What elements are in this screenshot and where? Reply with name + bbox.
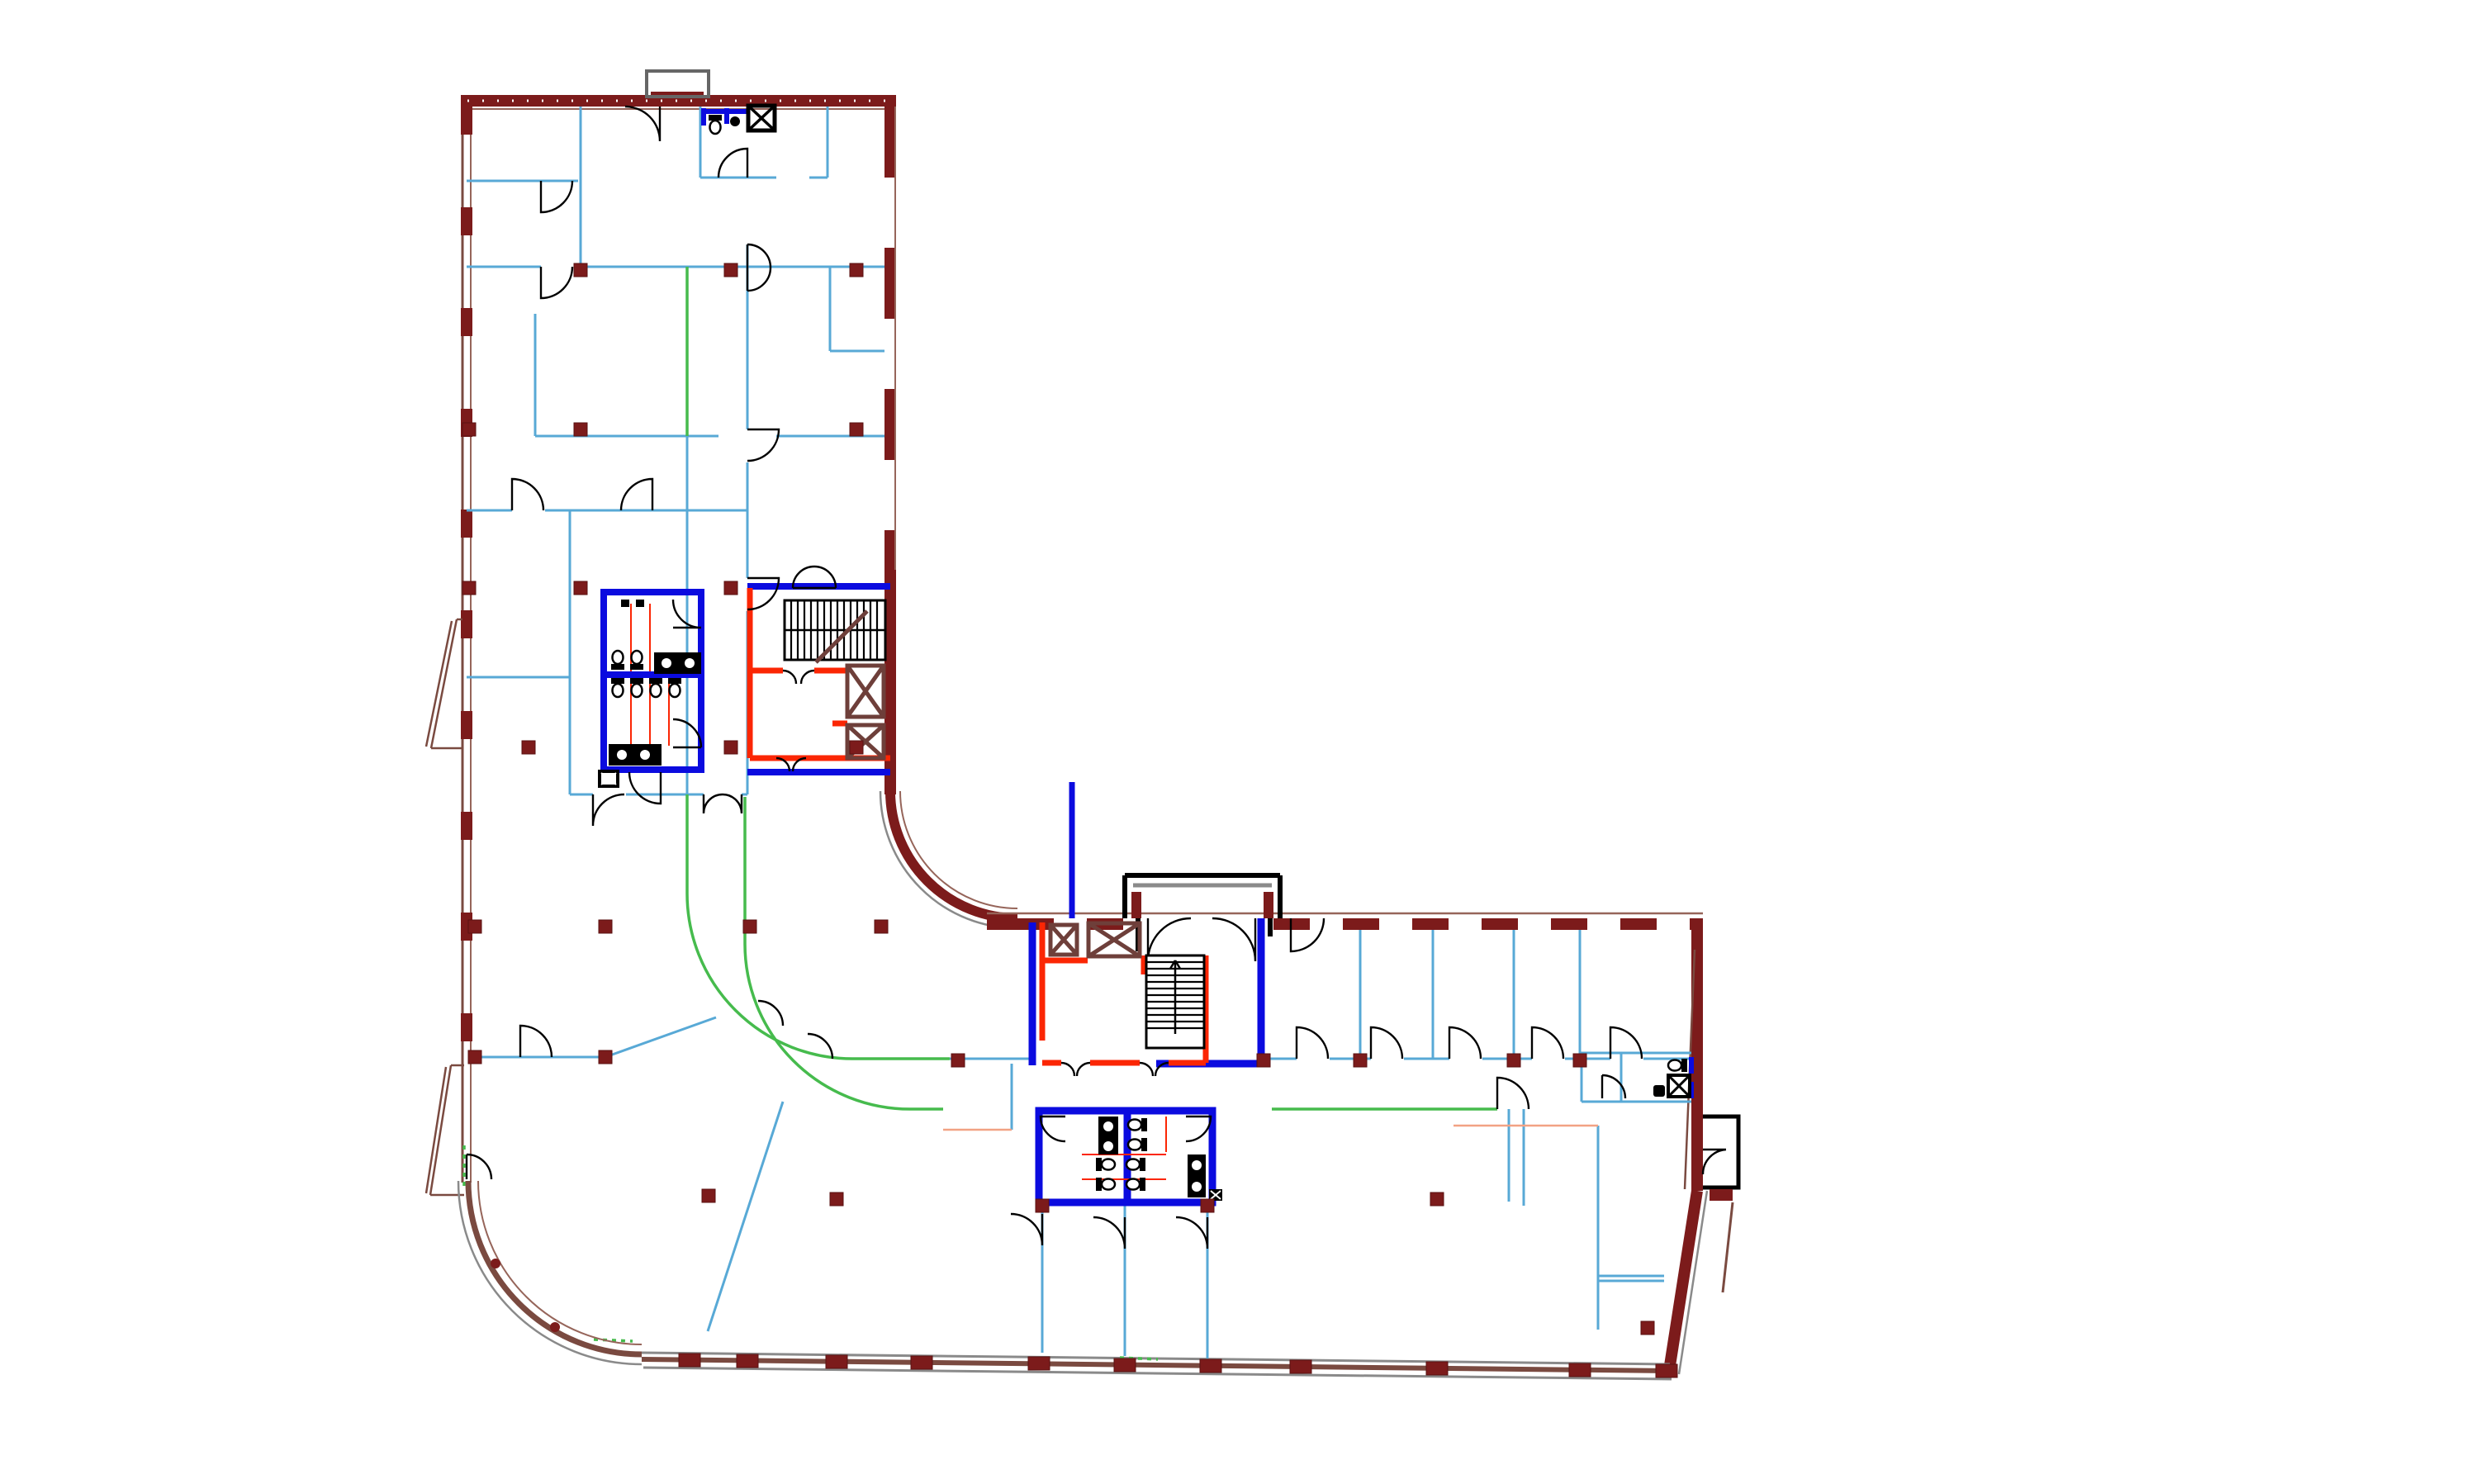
curve-column-a	[491, 1259, 500, 1268]
door-swing	[541, 267, 572, 298]
south-wing-wall-start	[987, 918, 1020, 930]
column	[724, 581, 737, 595]
south-vestibule	[1125, 875, 1280, 961]
column	[462, 581, 476, 595]
column	[1036, 1199, 1049, 1212]
stoop-rail	[1723, 1202, 1733, 1292]
door-swing	[512, 479, 543, 510]
door-swing	[621, 479, 652, 510]
column	[1201, 1199, 1214, 1212]
toilet-fixture	[709, 115, 722, 134]
door-swing	[541, 181, 572, 212]
wall-pier	[679, 1354, 700, 1367]
column	[724, 263, 737, 277]
column	[1430, 1192, 1444, 1206]
sink-counter	[609, 744, 662, 766]
floor-plan-page	[0, 0, 2485, 1484]
sink-bowl	[1103, 1121, 1113, 1131]
column	[850, 741, 863, 754]
column	[875, 920, 888, 933]
toilet-fixture	[611, 678, 624, 697]
west-angled-feature	[426, 619, 462, 748]
door-swing	[1297, 1027, 1328, 1059]
toilet-fixture	[611, 651, 624, 670]
toilet-fixture	[1096, 1158, 1115, 1171]
column	[574, 581, 587, 595]
fixture	[621, 600, 629, 607]
elevator-x	[847, 666, 884, 717]
east-stoop	[1703, 1117, 1738, 1292]
sink-bowl	[640, 750, 650, 760]
toilet-fixture	[1126, 1158, 1145, 1171]
curved-corridor-inner	[687, 794, 950, 1059]
inner-corner-curve	[890, 791, 1017, 918]
glazed-partitions	[687, 267, 1497, 1109]
door-swing	[593, 794, 624, 826]
door-swing	[747, 429, 779, 461]
column	[462, 423, 476, 436]
column	[1641, 1321, 1654, 1335]
door-swing	[718, 149, 747, 178]
south-wing-partitions	[475, 930, 1691, 1358]
vestibule-pier-east	[1264, 892, 1273, 918]
curve-column-b	[550, 1322, 560, 1332]
column	[951, 1054, 965, 1067]
floor-plan-canvas	[0, 0, 2485, 1484]
stoop-step	[1710, 1189, 1733, 1201]
column	[830, 1192, 843, 1206]
janitor-shaft-x	[601, 773, 616, 785]
toilet-fixture	[1128, 1138, 1147, 1151]
wall-pier	[1290, 1360, 1311, 1373]
wall-pier	[1200, 1359, 1221, 1373]
door-swing	[1371, 1027, 1402, 1059]
sink-bowl	[1192, 1182, 1202, 1192]
east-sink	[1653, 1085, 1665, 1097]
door-swing-curve	[758, 1001, 783, 1026]
column	[1257, 1054, 1270, 1067]
door-swing	[625, 107, 660, 141]
toilet-fixture	[630, 678, 643, 697]
door-swing	[1041, 1117, 1065, 1141]
toilet-fixture	[1128, 1118, 1147, 1131]
toilet-fixture	[668, 678, 681, 697]
south-elevators	[1050, 923, 1140, 956]
sink-bowl	[1103, 1141, 1113, 1151]
wall-pier	[1426, 1362, 1448, 1375]
column	[522, 741, 535, 754]
south-core	[1032, 918, 1261, 1076]
door-swing	[1497, 1078, 1529, 1109]
vestibule-outline	[1125, 875, 1280, 918]
sink-bowl	[685, 658, 695, 668]
sink-bowl	[662, 658, 671, 668]
east-shaft-x	[1668, 1075, 1690, 1097]
inner-corner-curve-inner	[900, 791, 1017, 908]
column	[468, 1050, 481, 1064]
toilet-fixture	[630, 651, 643, 670]
vestibule-pier-west	[1131, 892, 1141, 918]
east-wall	[1691, 918, 1703, 1191]
column	[599, 920, 612, 933]
toilet-fixture	[1096, 1178, 1115, 1191]
door-swing	[1532, 1027, 1563, 1059]
column	[1507, 1054, 1520, 1067]
inner-corner-curve-outer	[880, 791, 1017, 928]
door-swing	[1093, 1217, 1125, 1249]
west-ramp-trapezoid	[426, 1065, 464, 1195]
column	[743, 920, 756, 933]
fixture	[636, 600, 644, 607]
door-swing	[1186, 1117, 1211, 1141]
south-stair	[1146, 955, 1204, 1048]
column	[850, 423, 863, 436]
column	[1573, 1054, 1586, 1067]
door-swing	[629, 772, 661, 804]
southwest-curve-outer	[458, 1181, 642, 1364]
roof-canopy	[647, 71, 709, 97]
columns-layer	[462, 263, 1654, 1335]
top-restroom-sink	[730, 116, 740, 126]
sink-bowl	[617, 750, 627, 760]
double-door-swing	[704, 794, 742, 813]
south-restroom-walls	[1039, 1111, 1212, 1202]
southwest-curve-inner	[478, 1181, 642, 1344]
sink-bowl	[1192, 1160, 1202, 1170]
wall-pier	[911, 1356, 932, 1369]
column	[1354, 1054, 1367, 1067]
column	[702, 1189, 715, 1202]
north-stair	[785, 600, 885, 662]
north-core	[600, 586, 890, 786]
wall-pier	[1028, 1357, 1050, 1370]
door-swing	[1011, 1214, 1042, 1245]
column	[850, 263, 863, 277]
elevator-x	[1050, 925, 1077, 955]
door-swing	[520, 1026, 552, 1057]
door-swing	[1176, 1217, 1207, 1249]
entry-door-right	[1212, 918, 1255, 961]
wall-pier	[1114, 1358, 1136, 1372]
column	[574, 263, 587, 277]
column	[468, 920, 481, 933]
toilet-fixture	[1668, 1059, 1687, 1072]
door-swing	[1449, 1027, 1481, 1059]
toilet-fixture	[1126, 1178, 1145, 1191]
wall-pier	[1656, 1364, 1677, 1377]
toilet-fixture	[649, 678, 662, 697]
column	[599, 1050, 612, 1064]
wall-pier	[1569, 1363, 1591, 1377]
stoop-outline	[1703, 1117, 1738, 1188]
column	[724, 741, 737, 754]
wall-pier	[737, 1354, 758, 1368]
stoop-door-swing	[1703, 1150, 1726, 1174]
column	[574, 423, 587, 436]
wall-pier	[826, 1355, 847, 1368]
